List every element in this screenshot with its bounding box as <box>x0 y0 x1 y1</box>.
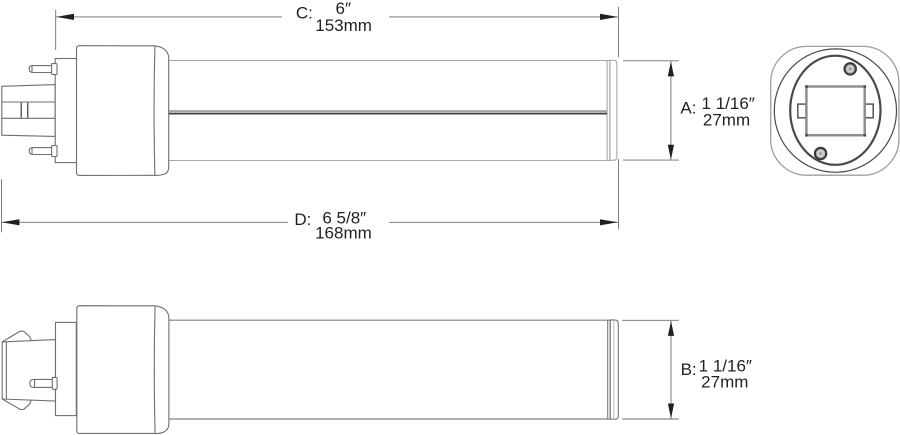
svg-text:D:: D: <box>294 210 311 229</box>
svg-text:27mm: 27mm <box>703 111 750 130</box>
svg-text:168mm: 168mm <box>315 224 372 243</box>
svg-text:C:: C: <box>296 4 313 23</box>
svg-text:B:: B: <box>681 360 697 379</box>
svg-text:A:: A: <box>680 99 696 118</box>
svg-text:27mm: 27mm <box>701 372 748 391</box>
svg-text:153mm: 153mm <box>315 16 372 35</box>
